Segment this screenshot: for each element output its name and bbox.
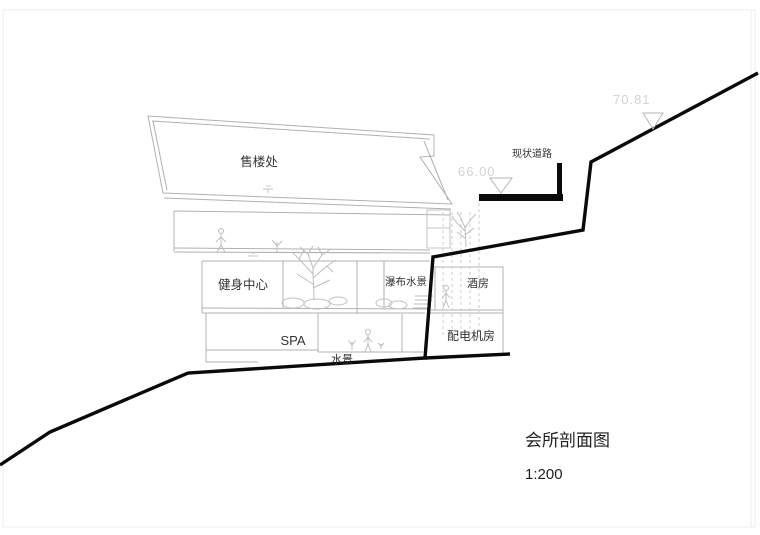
room-label-water-feature: 水景 (331, 353, 353, 366)
room-label-power-distribution-room: 配电机房 (447, 328, 495, 343)
building-outline (148, 116, 452, 204)
roof-inner-line (152, 121, 430, 139)
rock (304, 299, 330, 309)
elevation-marker-66: 66.00 (458, 164, 512, 193)
elevation-value: 70.81 (613, 92, 651, 107)
small-plant (272, 240, 282, 252)
drawing-scale: 1:200 (525, 466, 563, 483)
room-label-wine-room: 酒房 (467, 277, 489, 290)
trees (272, 212, 476, 350)
rock (329, 297, 347, 305)
earth-hatch (443, 203, 479, 338)
rocks (282, 297, 407, 309)
stair-structure (427, 210, 450, 248)
slab-line (174, 211, 451, 215)
rock (282, 298, 304, 308)
right-wall-inner-line (424, 141, 448, 200)
rock (389, 301, 407, 309)
road-label: 现状道路 (512, 147, 552, 160)
room-label-sales-office: 售楼处 (240, 154, 278, 169)
cad-section-sheet: 70.81 66.00 现状道路 售楼处 健身中心 瀑布水景 酒房 SPA 水景… (0, 0, 760, 535)
slab-line (164, 198, 451, 209)
road-slab (479, 194, 563, 201)
tree-trunk-right (465, 226, 466, 247)
retaining-wall (557, 163, 562, 196)
room-label-fitness-center: 健身中心 (218, 277, 269, 292)
room-label-spa: SPA (280, 333, 305, 348)
tree-trunk (313, 268, 314, 300)
elevation-triangle-icon (490, 178, 512, 193)
room-label-waterfall-water-feature: 瀑布水景 (385, 275, 427, 288)
stair-box (427, 210, 450, 248)
page-border (3, 10, 755, 527)
tree-branches-right (452, 212, 476, 238)
elevation-marker-70: 70.81 (613, 92, 663, 129)
section-canvas: 70.81 66.00 现状道路 售楼处 健身中心 瀑布水景 酒房 SPA 水景… (0, 0, 760, 535)
sales-office-building (148, 116, 452, 204)
terrace-structure (164, 198, 451, 256)
person-figure-water-feature (364, 330, 372, 353)
drawing-title: 会所剖面图 (525, 431, 610, 450)
elevation-value: 66.00 (458, 164, 496, 179)
terrain-branch-line (425, 354, 510, 358)
title-block: 会所剖面图 1:200 (525, 431, 610, 483)
